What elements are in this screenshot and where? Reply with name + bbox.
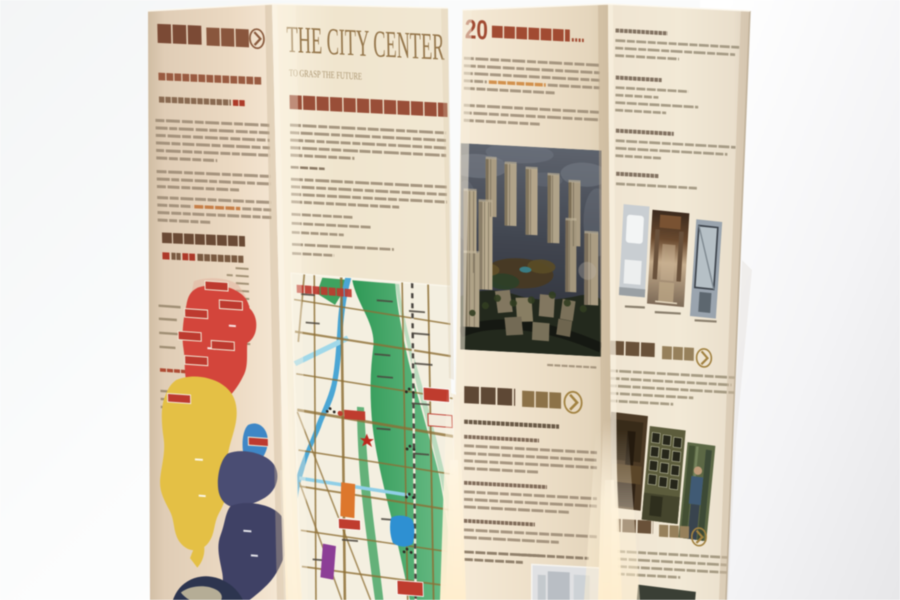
svg-text:THE CITY CENTER: THE CITY CENTER	[286, 19, 445, 69]
